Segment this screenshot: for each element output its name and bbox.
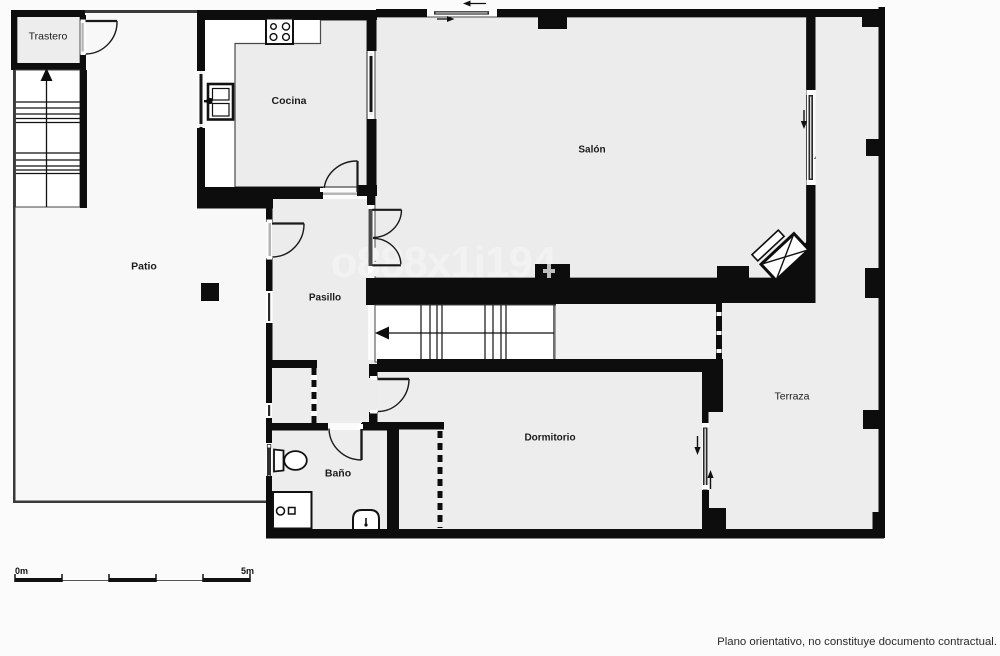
svg-text:5m: 5m [241, 566, 254, 576]
svg-text:Trastero: Trastero [29, 31, 68, 43]
svg-text:Dormitorio: Dormitorio [524, 433, 575, 444]
svg-text:Plano orientativo, no constitu: Plano orientativo, no constituye documen… [717, 636, 997, 648]
svg-text:0m: 0m [15, 566, 28, 576]
svg-text:Terraza: Terraza [774, 391, 809, 403]
svg-text:Cocina: Cocina [271, 95, 306, 107]
svg-text:Pasillo: Pasillo [309, 293, 341, 304]
svg-text:Baño: Baño [325, 468, 351, 480]
svg-text:Salón: Salón [578, 145, 605, 156]
svg-text:Patio: Patio [131, 261, 157, 273]
